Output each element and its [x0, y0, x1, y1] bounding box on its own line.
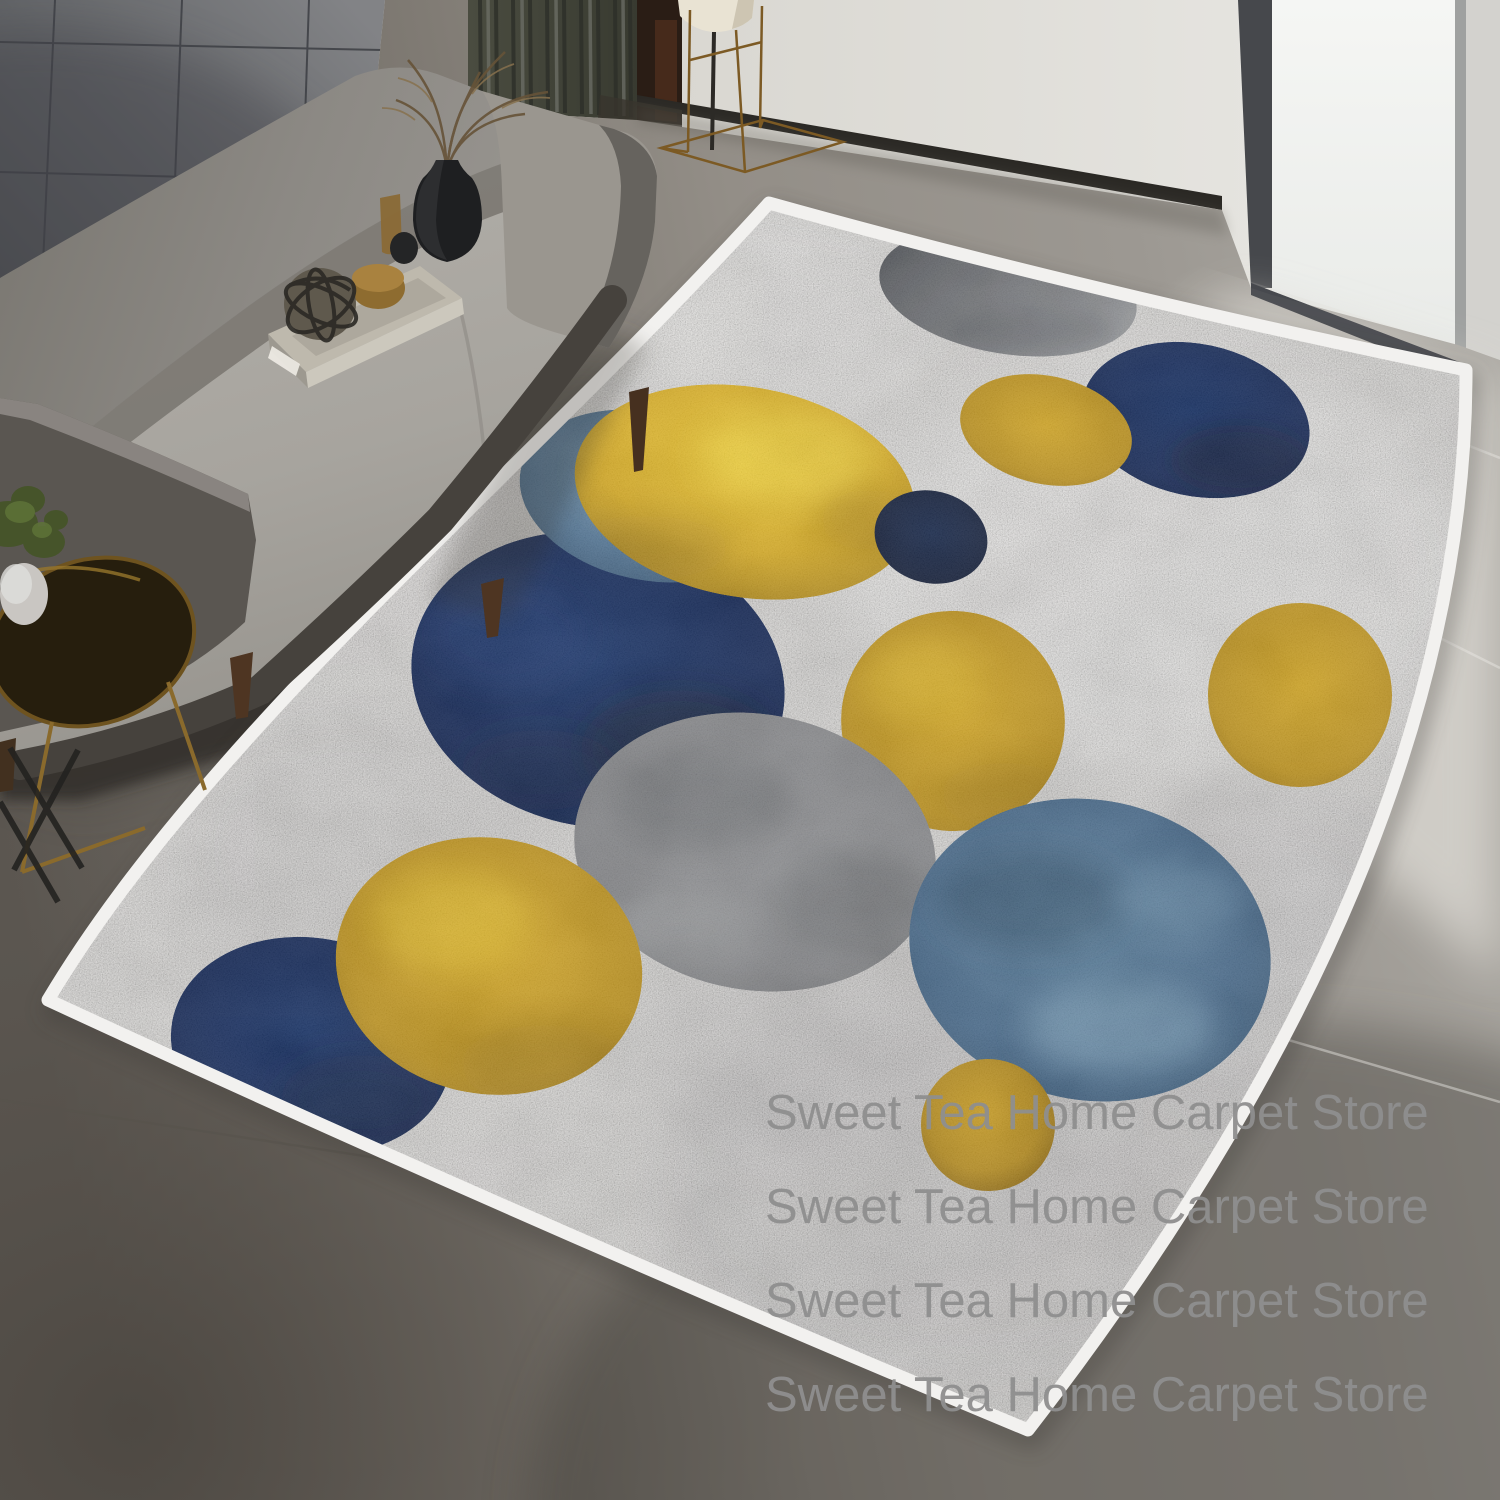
svg-text:Sweet Tea Home Carpet Store: Sweet Tea Home Carpet Store: [765, 1368, 1429, 1422]
svg-text:Sweet Tea Home Carpet Store: Sweet Tea Home Carpet Store: [765, 1180, 1429, 1234]
svg-text:Sweet Tea Home Carpet Store: Sweet Tea Home Carpet Store: [765, 1086, 1429, 1140]
svg-text:Sweet Tea Home Carpet Store: Sweet Tea Home Carpet Store: [765, 1274, 1429, 1328]
